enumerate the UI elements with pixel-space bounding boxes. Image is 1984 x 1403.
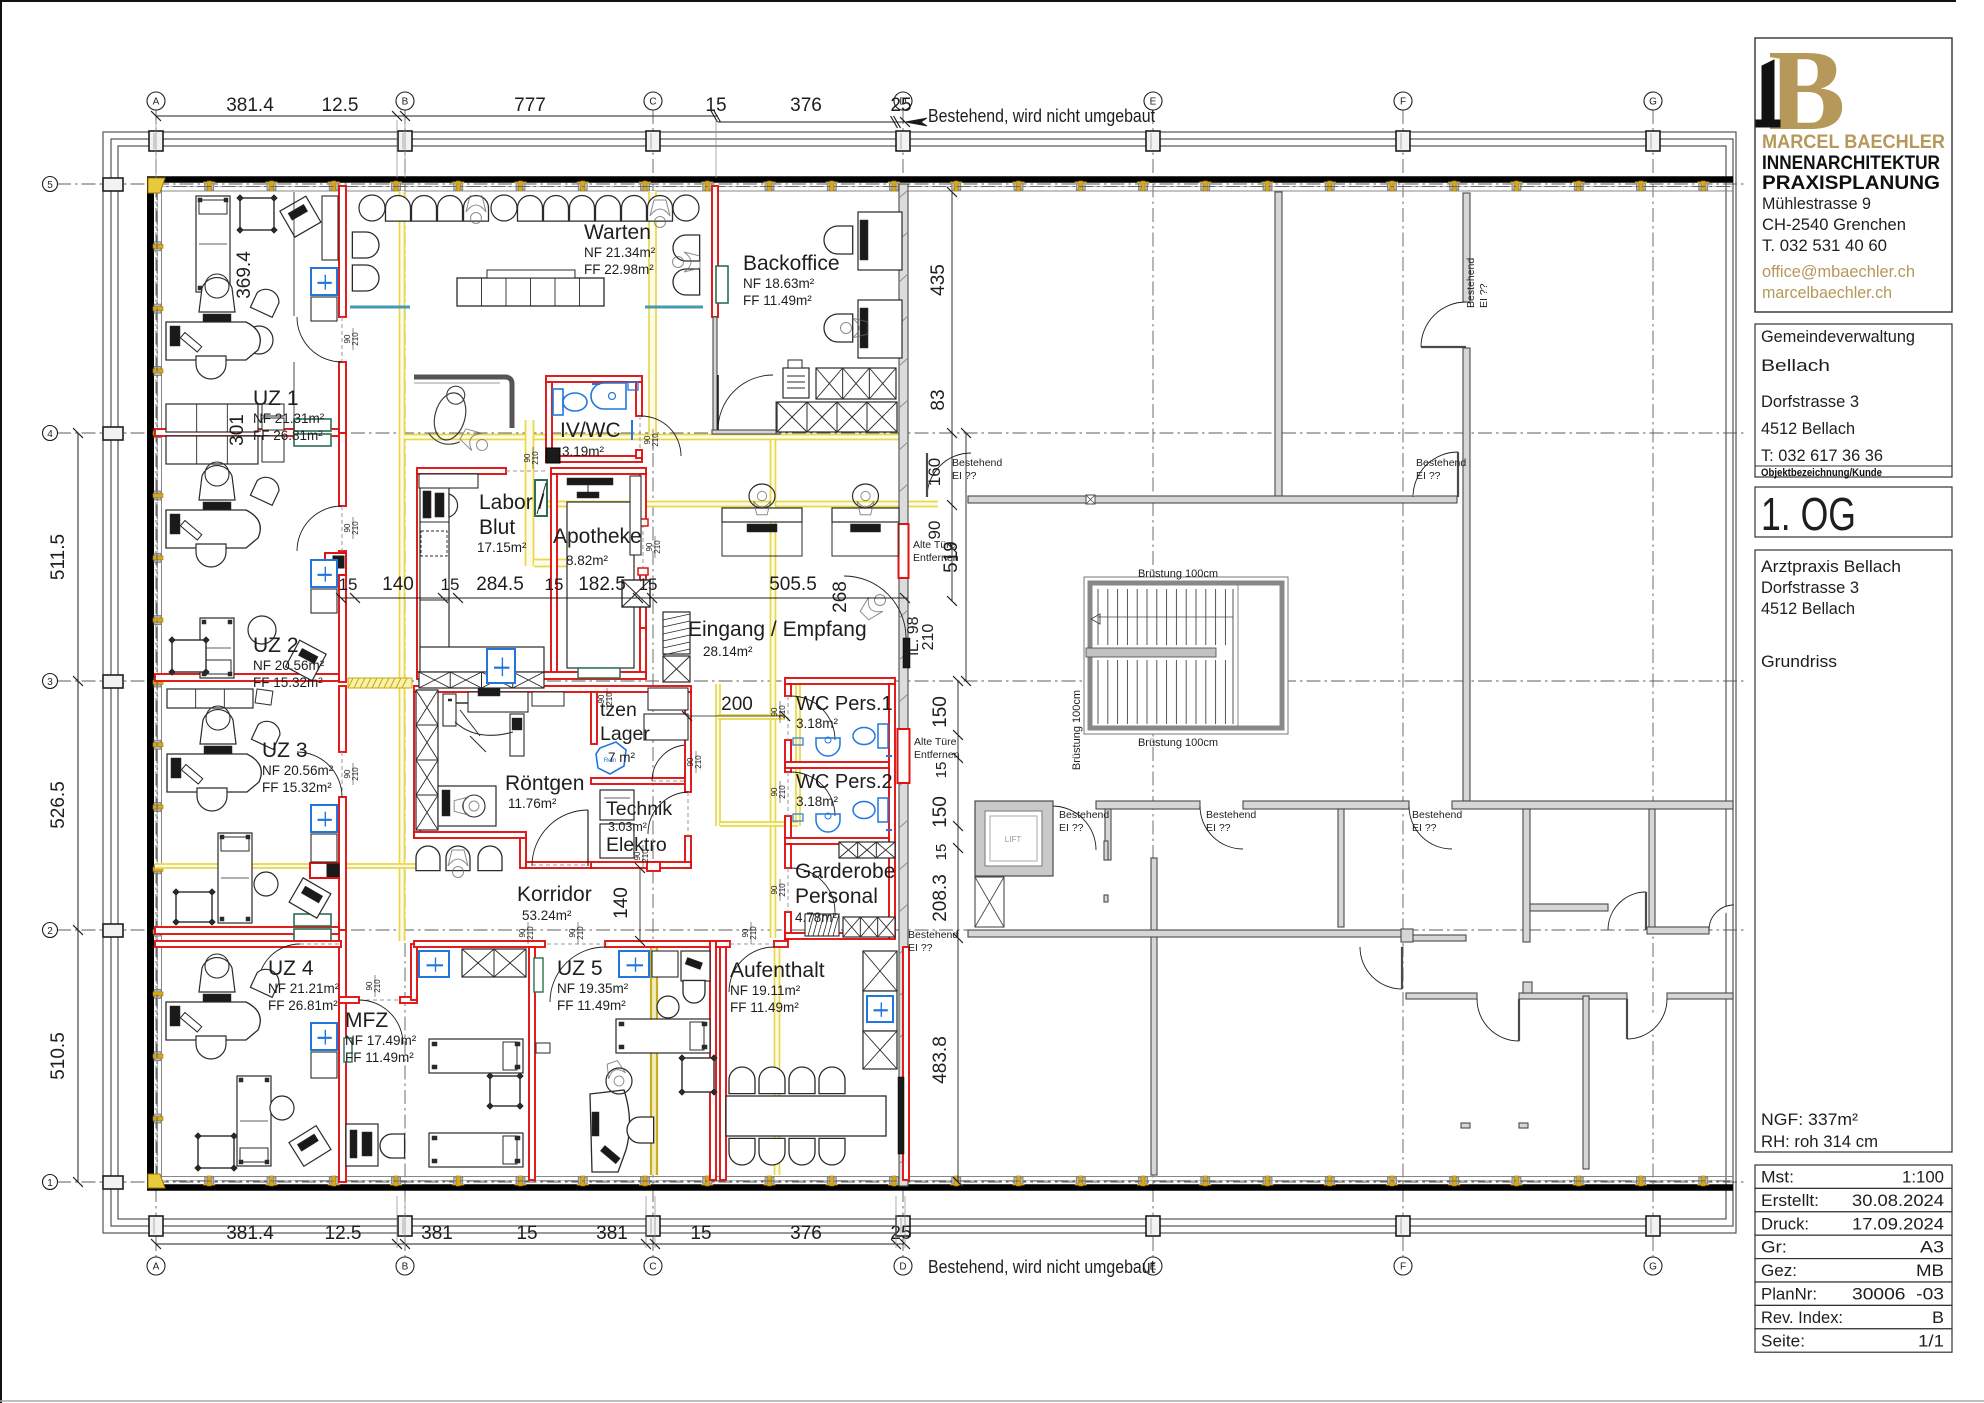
svg-text:210: 210 [351, 767, 360, 781]
svg-text:MFZ: MFZ [345, 1009, 388, 1032]
svg-text:G: G [1649, 97, 1657, 108]
svg-text:210: 210 [576, 926, 585, 940]
svg-text:Warten: Warten [584, 221, 651, 244]
svg-text:381: 381 [421, 1223, 453, 1244]
svg-text:15: 15 [545, 575, 564, 594]
svg-text:28.14m²: 28.14m² [703, 644, 753, 659]
svg-text:NF 21.31m²: NF 21.31m² [253, 411, 325, 426]
svg-text:210: 210 [373, 979, 382, 993]
svg-text:15: 15 [441, 575, 460, 594]
svg-text:A: A [153, 97, 160, 108]
svg-text:NF 20.56m²: NF 20.56m² [253, 658, 325, 673]
svg-text:15: 15 [933, 762, 950, 779]
svg-text:Gez:: Gez: [1761, 1262, 1797, 1280]
svg-text:Erstellt:: Erstellt: [1761, 1192, 1819, 1210]
svg-text:EI ??: EI ?? [908, 942, 933, 954]
svg-text:Bestehend, wird nicht umgebaut: Bestehend, wird nicht umgebaut [928, 1256, 1155, 1277]
svg-text:A: A [153, 1262, 160, 1273]
svg-text:53.24m²: 53.24m² [522, 908, 572, 923]
svg-text:210: 210 [526, 926, 535, 940]
svg-text:NGF: 337m²: NGF: 337m² [1761, 1110, 1858, 1129]
svg-text:210: 210 [694, 755, 703, 769]
svg-text:Aufenthalt: Aufenthalt [730, 959, 825, 982]
svg-text:1. OG: 1. OG [1761, 488, 1856, 540]
svg-text:WC Pers.2: WC Pers.2 [796, 771, 893, 793]
svg-text:Labor /: Labor / [479, 491, 545, 514]
svg-text:INNENARCHITEKTUR: INNENARCHITEKTUR [1762, 153, 1940, 174]
svg-text:4512 Bellach: 4512 Bellach [1761, 599, 1855, 618]
svg-text:CH-2540 Grenchen: CH-2540 Grenchen [1762, 215, 1906, 234]
svg-text:Druck:: Druck: [1761, 1215, 1809, 1233]
svg-text:3.18m²: 3.18m² [796, 794, 839, 809]
svg-text:Arztpraxis Bellach: Arztpraxis Bellach [1761, 557, 1901, 576]
svg-text:210: 210 [641, 849, 650, 863]
svg-text:FF 11.49m²: FF 11.49m² [730, 1000, 799, 1015]
svg-text:777: 777 [514, 95, 546, 116]
svg-text:Blut: Blut [479, 516, 515, 539]
svg-text:FF 11.49m²: FF 11.49m² [557, 998, 626, 1013]
svg-text:FF 15.32m²: FF 15.32m² [262, 780, 332, 795]
svg-text:435: 435 [928, 264, 949, 296]
svg-text:Lager: Lager [600, 723, 650, 745]
svg-text:Gr:: Gr: [1761, 1239, 1787, 1257]
svg-text:IV/WC: IV/WC [560, 419, 621, 442]
svg-text:Bestehend: Bestehend [1412, 809, 1462, 821]
svg-text:150: 150 [930, 796, 951, 828]
svg-text:B: B [402, 97, 409, 108]
svg-text:2: 2 [47, 926, 53, 937]
svg-text:210: 210 [653, 540, 662, 554]
svg-text:EI ??: EI ?? [1059, 822, 1084, 834]
svg-text:381.4: 381.4 [226, 95, 274, 116]
svg-text:FF 11.49m²: FF 11.49m² [743, 293, 812, 308]
svg-text:NF 21.21m²: NF 21.21m² [268, 981, 340, 996]
svg-text:Bestehend: Bestehend [1059, 809, 1109, 821]
svg-text:140: 140 [611, 887, 632, 919]
svg-text:210: 210 [605, 692, 614, 706]
svg-text:15: 15 [933, 844, 950, 861]
svg-text:Gemeindeverwaltung: Gemeindeverwaltung [1761, 327, 1915, 346]
svg-text:140: 140 [382, 574, 414, 595]
svg-text:210: 210 [531, 451, 540, 465]
svg-text:Eingang / Empfang: Eingang / Empfang [688, 618, 867, 641]
svg-text:5: 5 [47, 180, 53, 191]
svg-text:3.18m²: 3.18m² [796, 716, 839, 731]
svg-text:83: 83 [928, 389, 949, 410]
svg-text:Entfernen: Entfernen [914, 749, 960, 761]
svg-text:30.08.2024: 30.08.2024 [1852, 1192, 1944, 1210]
svg-text:NF 20.56m²: NF 20.56m² [262, 763, 334, 778]
svg-text:Bestehend: Bestehend [1465, 258, 1477, 308]
svg-text:510.5: 510.5 [48, 1032, 69, 1080]
svg-text:NF 21.34m²: NF 21.34m² [584, 245, 656, 260]
svg-text:Mühlestrasse 9: Mühlestrasse 9 [1762, 194, 1871, 213]
svg-text:Bellach: Bellach [1761, 356, 1830, 375]
svg-text:Backoffice: Backoffice [743, 252, 840, 275]
svg-text:505.5: 505.5 [769, 574, 817, 595]
svg-text:Bestehend: Bestehend [1416, 457, 1466, 469]
svg-text:Bestehend: Bestehend [952, 457, 1002, 469]
svg-text:3: 3 [47, 677, 53, 688]
svg-text:284.5: 284.5 [476, 574, 524, 595]
svg-text:1/1: 1/1 [1918, 1332, 1944, 1350]
svg-text:Objektbezeichnung/Kunde: Objektbezeichnung/Kunde [1761, 467, 1882, 479]
svg-text:D: D [899, 1262, 906, 1273]
svg-text:12.5: 12.5 [325, 1223, 362, 1244]
svg-text:526.5: 526.5 [48, 781, 69, 829]
svg-text:UZ 2: UZ 2 [253, 634, 299, 657]
svg-text:T: 032 617 36 36: T: 032 617 36 36 [1761, 446, 1883, 465]
svg-text:NF 19.11m²: NF 19.11m² [730, 983, 801, 998]
svg-text:210: 210 [351, 332, 360, 346]
svg-text:15: 15 [690, 1223, 711, 1244]
svg-text:Bestehend: Bestehend [1206, 809, 1256, 821]
svg-text:511.5: 511.5 [48, 534, 69, 580]
svg-text:F: F [1400, 1262, 1406, 1273]
svg-text:iL. 98: iL. 98 [905, 616, 922, 655]
svg-text:210: 210 [778, 785, 787, 799]
svg-text:EI ??: EI ?? [1412, 822, 1437, 834]
svg-text:17.09.2024: 17.09.2024 [1852, 1215, 1944, 1233]
svg-text:UZ 5: UZ 5 [557, 957, 603, 980]
svg-text:T. 032 531 40 60: T. 032 531 40 60 [1762, 236, 1887, 255]
svg-text:Dorfstrasse 3: Dorfstrasse 3 [1761, 392, 1859, 411]
svg-text:UZ 3: UZ 3 [262, 739, 308, 762]
svg-text:8.82m²: 8.82m² [566, 553, 609, 568]
svg-text:3.03m²: 3.03m² [608, 820, 647, 834]
svg-text:Brüstung 100cm: Brüstung 100cm [1138, 737, 1218, 749]
svg-text:WC Pers.1: WC Pers.1 [796, 693, 893, 715]
svg-text:Rev. Index:: Rev. Index: [1761, 1309, 1843, 1327]
svg-text:F: F [1400, 97, 1406, 108]
svg-text:office@mbaechler.ch: office@mbaechler.ch [1762, 262, 1915, 281]
svg-text:LIFT: LIFT [1005, 835, 1022, 844]
svg-text:marcelbaechler.ch: marcelbaechler.ch [1762, 283, 1892, 302]
svg-text:Alte Türe: Alte Türe [914, 736, 957, 748]
svg-text:15: 15 [339, 575, 358, 594]
svg-text:NF 19.35m²: NF 19.35m² [557, 981, 629, 996]
svg-text:EI ??: EI ?? [1206, 822, 1231, 834]
svg-text:FF 11.49m²: FF 11.49m² [345, 1050, 414, 1065]
svg-text:NF 17.49m²: NF 17.49m² [345, 1033, 417, 1048]
svg-text:EI ??: EI ?? [1416, 470, 1441, 482]
svg-text:210: 210 [778, 883, 787, 897]
svg-text:Bestehend, wird nicht umgebaut: Bestehend, wird nicht umgebaut [928, 105, 1155, 126]
svg-text:UZ 1: UZ 1 [253, 387, 299, 410]
svg-text:17.15m²: 17.15m² [477, 540, 527, 555]
svg-text:4.78m²: 4.78m² [795, 910, 838, 925]
svg-text:150: 150 [930, 696, 951, 728]
svg-text:B: B [1932, 1309, 1944, 1327]
svg-text:1: 1 [47, 1178, 53, 1189]
svg-text:160: 160 [925, 458, 944, 486]
svg-text:Dorfstrasse 3: Dorfstrasse 3 [1761, 578, 1859, 597]
svg-text:15: 15 [705, 95, 726, 116]
svg-text:RH: roh 314 cm: RH: roh 314 cm [1761, 1132, 1878, 1151]
svg-text:G: G [1649, 1262, 1657, 1273]
svg-text:376: 376 [790, 1223, 822, 1244]
svg-text:A3: A3 [1920, 1239, 1944, 1257]
svg-text:PRAXISPLANUNG: PRAXISPLANUNG [1762, 173, 1940, 194]
svg-text:268: 268 [830, 581, 851, 613]
svg-text:301: 301 [227, 414, 248, 446]
svg-text:4: 4 [47, 429, 53, 440]
svg-text:11.76m²: 11.76m² [508, 796, 557, 811]
svg-text:FF 15.32m²: FF 15.32m² [253, 675, 323, 690]
svg-text:Technik: Technik [606, 798, 672, 820]
svg-text:C: C [649, 97, 656, 108]
svg-text:30006 -03: 30006 -03 [1852, 1286, 1944, 1304]
svg-text:EI ??: EI ?? [952, 470, 977, 482]
svg-text:210: 210 [778, 705, 787, 719]
svg-text:4512 Bellach: 4512 Bellach [1761, 419, 1855, 438]
svg-text:Garderobe: Garderobe [795, 860, 895, 883]
svg-text:PlanNr:: PlanNr: [1761, 1286, 1817, 1304]
svg-text:25: 25 [890, 1223, 911, 1244]
svg-text:Personal: Personal [795, 885, 878, 908]
svg-text:182.5: 182.5 [578, 574, 626, 595]
svg-text:EI ??: EI ?? [1478, 283, 1490, 308]
svg-text:381: 381 [596, 1223, 628, 1244]
svg-text:FF 22.98m²: FF 22.98m² [584, 262, 654, 277]
svg-text:Seite:: Seite: [1761, 1332, 1805, 1350]
svg-text:15: 15 [516, 1223, 537, 1244]
svg-text:1:100: 1:100 [1902, 1169, 1944, 1187]
svg-text:519: 519 [941, 541, 962, 573]
svg-text:UZ 4: UZ 4 [268, 957, 314, 980]
svg-text:3.19m²: 3.19m² [562, 444, 605, 459]
svg-text:200: 200 [721, 694, 753, 715]
svg-text:381.4: 381.4 [226, 1223, 274, 1244]
svg-text:483.8: 483.8 [930, 1036, 951, 1084]
svg-text:Brüstung 100cm: Brüstung 100cm [1071, 690, 1083, 770]
svg-text:376: 376 [790, 95, 822, 116]
svg-text:15: 15 [639, 575, 658, 594]
svg-text:Grundriss: Grundriss [1761, 652, 1837, 671]
svg-text:210: 210 [651, 433, 660, 447]
svg-text:12.5: 12.5 [322, 95, 359, 116]
svg-text:7 m²: 7 m² [608, 750, 636, 765]
svg-text:210: 210 [351, 521, 360, 535]
svg-text:C: C [649, 1262, 656, 1273]
svg-text:210: 210 [749, 926, 758, 940]
svg-text:Brüstung 100cm: Brüstung 100cm [1138, 568, 1218, 580]
svg-text:210: 210 [920, 624, 937, 651]
svg-text:Korridor: Korridor [517, 883, 592, 906]
svg-text:B: B [402, 1262, 409, 1273]
svg-text:Apotheke: Apotheke [553, 525, 642, 548]
svg-text:FF 26.81m²: FF 26.81m² [268, 998, 338, 1013]
svg-text:FF 26.81m²: FF 26.81m² [253, 428, 323, 443]
svg-text:25: 25 [890, 95, 911, 116]
svg-text:MARCEL BAECHLER: MARCEL BAECHLER [1762, 132, 1945, 153]
svg-text:208.3: 208.3 [930, 874, 951, 922]
svg-text:Mst:: Mst: [1761, 1169, 1794, 1187]
svg-text:MB: MB [1916, 1262, 1944, 1280]
svg-text:NF 18.63m²: NF 18.63m² [743, 276, 815, 291]
svg-text:Röntgen: Röntgen [505, 772, 584, 795]
svg-text:90: 90 [925, 521, 944, 540]
svg-text:Bestehend: Bestehend [908, 929, 958, 941]
svg-text:369.4: 369.4 [234, 251, 255, 299]
